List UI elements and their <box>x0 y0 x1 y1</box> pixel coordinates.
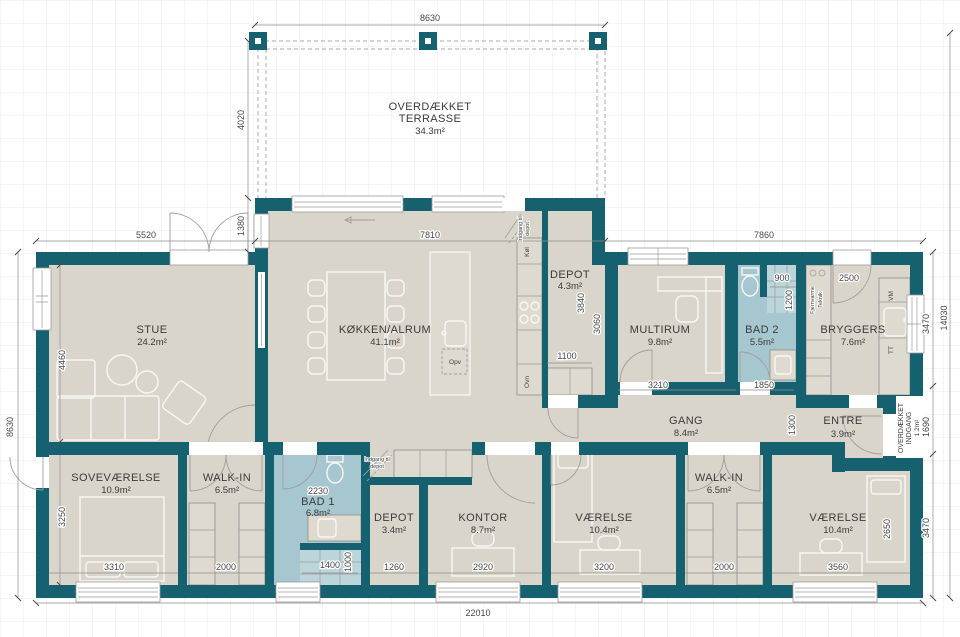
dim-walkin-r-width: 2000 <box>714 562 734 572</box>
room-label-terrasse: TERRASSE <box>399 113 462 125</box>
room-label-walkin-l: WALK-IN <box>203 472 251 484</box>
room-area-multirum: 9.8m² <box>648 337 672 348</box>
dim-sove-height: 3250 <box>57 507 67 527</box>
room-label-bad2: BAD 2 <box>745 324 779 336</box>
room-area-vaerelse-c: 10.4m² <box>589 525 619 536</box>
room-label-multirum: MULTIRUM <box>630 324 690 336</box>
dim-stue-width: 5520 <box>136 230 156 240</box>
vanity <box>770 350 796 380</box>
dim-shower-height: 1200 <box>784 290 794 310</box>
room-label-bad1: BAD 1 <box>301 496 335 508</box>
dim-walkin-l-width: 2000 <box>216 562 236 572</box>
dim-bad1-shower-h: 1000 <box>343 552 353 572</box>
room-label-kokken: KØKKEN/ALRUM <box>339 324 431 336</box>
terrace-post <box>419 32 437 50</box>
dim-bad2-width: 1850 <box>754 380 774 390</box>
depot-entry-label: Indgang til <box>518 216 524 241</box>
sliding-door <box>292 196 403 212</box>
kitchen-cabinet <box>547 368 592 395</box>
room-label-terrasse: OVERDÆKKET <box>389 101 472 113</box>
dim-gang-width: 1300 <box>787 415 797 435</box>
dim-vaerelse-r-width: 3560 <box>828 562 848 572</box>
room-label-stue: STUE <box>137 324 168 336</box>
teknik-label: Teknik <box>818 292 824 308</box>
oven-label: Ovn <box>524 376 531 388</box>
room-area-kokken: 41.1m² <box>370 337 400 348</box>
dim-kontor-width: 2920 <box>473 562 493 572</box>
dim-total-width: 22010 <box>465 608 490 618</box>
dim-vaerelse-r-depth: 2650 <box>882 519 892 539</box>
room-label-sovevaerelse: SOVEVÆRELSE <box>71 472 160 484</box>
room-label-indgang: OVERDÆKKET <box>898 402 905 453</box>
floor-plan-drawing: OVERDÆKKET TERRASSE 34.3m² STUE 24.2m² K… <box>0 0 960 637</box>
room-label-kontor: KONTOR <box>458 512 507 524</box>
room-area-entre: 3.9m² <box>831 429 855 440</box>
window <box>254 214 269 248</box>
dim-bad1-width: 2230 <box>308 486 328 496</box>
room-area-kontor: 8.7m² <box>471 525 495 536</box>
dim-sove-width: 3310 <box>104 562 124 572</box>
room-area-sovevaerelse: 10.9m² <box>101 485 131 496</box>
room-label-walkin-r: WALK-IN <box>695 472 743 484</box>
washer-label: VM <box>888 291 895 301</box>
room-area-depot-b: 3.4m² <box>382 525 406 536</box>
dim-terrasse-depth: 4020 <box>236 110 246 130</box>
dim-terrasse-width: 8630 <box>420 13 440 23</box>
gang-wardrobe <box>394 450 472 478</box>
terrace-post <box>589 32 607 50</box>
dishwasher-label: Opv <box>449 359 462 366</box>
room-area-walkin-r: 6.5m² <box>707 485 731 496</box>
dim-vaerelse-height: 3470 <box>921 518 931 538</box>
dim-1380: 1380 <box>236 216 246 236</box>
dim-depot-b-width: 1260 <box>384 562 404 572</box>
window <box>432 196 504 212</box>
dim-multirum-height: 3060 <box>592 314 602 334</box>
room-label-depot-top: DEPOT <box>550 269 590 281</box>
dim-depot-height: 3840 <box>576 293 586 313</box>
room-label-indgang: INDGANG <box>906 412 913 445</box>
terrace-door <box>170 250 248 265</box>
dim-vaerelse-c-width: 3200 <box>594 562 614 572</box>
room-label-vaerelse-r: VÆRELSE <box>809 512 866 524</box>
dim-left-height: 8630 <box>5 417 15 437</box>
dim-bryggers-door: 2500 <box>839 273 859 283</box>
dim-bryggers-height: 3470 <box>921 314 931 334</box>
dryer-label: TT <box>888 346 895 354</box>
room-area-depot-top: 4.3m² <box>558 281 582 292</box>
depot-entry-label: depot <box>525 222 531 236</box>
room-label-gang: GANG <box>669 415 703 427</box>
dim-right-width: 7860 <box>754 230 774 240</box>
room-area-gang: 8.4m² <box>674 428 698 439</box>
room-area-bryggers: 7.6m² <box>841 337 865 348</box>
dim-1100: 1100 <box>557 351 576 361</box>
terrace-post <box>249 32 267 50</box>
dim-multirum-width: 3210 <box>648 380 668 390</box>
room-area-stue: 24.2m² <box>137 337 167 348</box>
dim-kokken-width: 7810 <box>420 230 440 240</box>
dim-bad1-shower-w: 1400 <box>320 560 340 570</box>
floor-plan: OVERDÆKKET TERRASSE 34.3m² STUE 24.2m² K… <box>0 0 960 637</box>
room-label-bryggers: BRYGGERS <box>820 324 885 336</box>
room-label-depot-b: DEPOT <box>374 512 414 524</box>
district-heating-label: Fjernvarme <box>810 286 816 314</box>
room-area-terrasse: 34.3m² <box>415 126 445 137</box>
room-area-walkin-l: 6.5m² <box>215 485 239 496</box>
dim-shower-width: 900 <box>774 273 789 283</box>
back-door <box>833 250 871 265</box>
room-label-entre: ENTRE <box>823 415 862 427</box>
room-area-bad2: 5.5m² <box>750 337 774 348</box>
room-area-bad1: 6.8m² <box>306 508 330 519</box>
room-area-vaerelse-r: 10.4m² <box>823 525 853 536</box>
room-label-vaerelse-c: VÆRELSE <box>575 512 632 524</box>
room-area-indgang: 1.2m² <box>914 419 921 436</box>
dim-stue-height: 4460 <box>57 350 67 370</box>
dim-indgang-height: 1690 <box>921 417 931 437</box>
depot-entry-label: Indgang til <box>364 457 389 463</box>
depot-entry-label: depot <box>370 464 384 470</box>
dim-house-height: 14030 <box>939 305 949 330</box>
fridge-label: Køl <box>524 247 531 257</box>
